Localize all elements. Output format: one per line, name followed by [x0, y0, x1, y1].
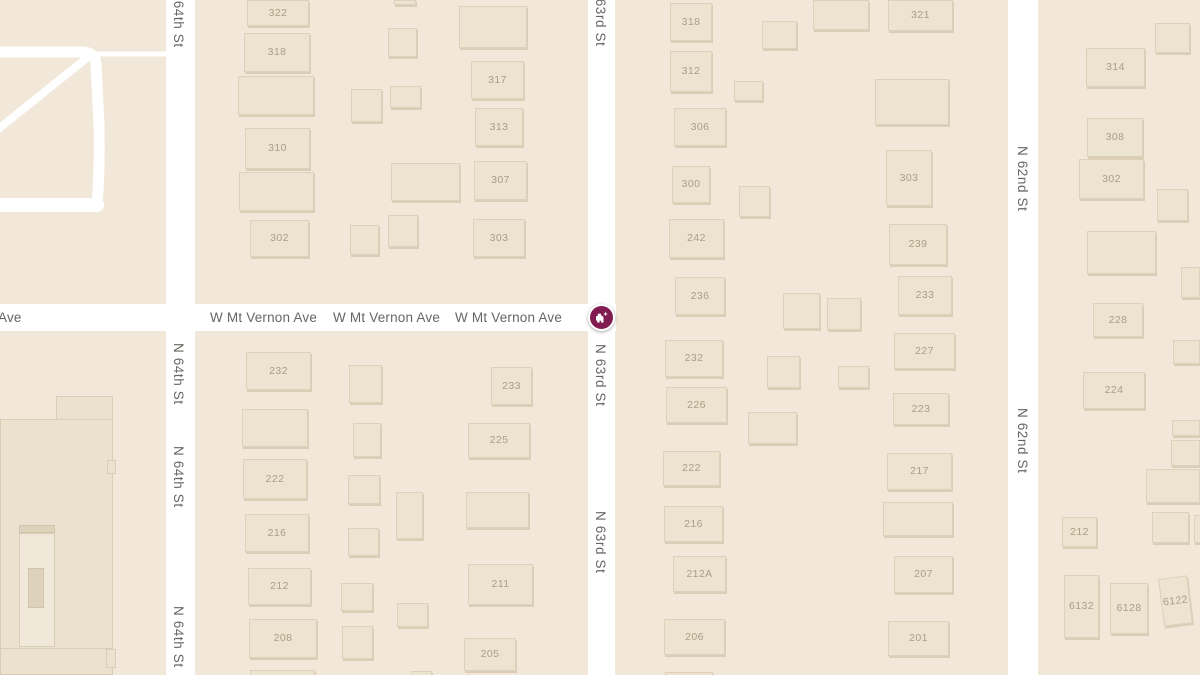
building-number: 216: [268, 528, 287, 539]
building-number: 201: [909, 633, 928, 644]
building-318: 318: [244, 33, 310, 72]
building-223: 223: [893, 393, 949, 425]
building-302: 302: [1079, 159, 1144, 199]
building-232: 232: [246, 352, 311, 390]
building-number: 300: [682, 179, 701, 190]
building-207: 207: [894, 556, 953, 593]
building-number: 322: [269, 8, 288, 19]
building-222: 222: [243, 459, 307, 499]
street-n-63rd-st: [588, 0, 615, 675]
building-201: 201: [888, 621, 949, 656]
building-number: 225: [490, 435, 509, 446]
road-label-n-64th-st: N 64th St: [171, 0, 186, 48]
building-number: 307: [491, 175, 510, 186]
building-number: 208: [274, 633, 293, 644]
building-number: 223: [912, 404, 931, 415]
building-number: 224: [1105, 385, 1124, 396]
building-302: 302: [250, 220, 309, 257]
building: [827, 298, 861, 330]
building-number: 303: [490, 233, 509, 244]
building: [342, 626, 373, 659]
building-number: 205: [481, 649, 500, 660]
building: [411, 671, 432, 675]
road-label-n-62nd-st: N 62nd St: [1015, 408, 1030, 473]
building-number: 6122: [1162, 594, 1188, 607]
building-number: 233: [502, 381, 521, 392]
building-318: 318: [670, 3, 712, 41]
building-number: 236: [691, 291, 710, 302]
building-205: 205: [464, 638, 516, 671]
building-233: 233: [898, 276, 952, 315]
building-239: 239: [889, 224, 947, 265]
driveway-path: [0, 52, 99, 205]
building-number: 222: [266, 474, 285, 485]
building: [739, 186, 770, 217]
building-number: 302: [270, 233, 289, 244]
road-label-w-mt-vernon-ave: W Mt Vernon Ave: [333, 310, 440, 325]
building: [351, 89, 382, 122]
building-227: 227: [894, 333, 955, 369]
building: [0, 419, 113, 675]
street-n-64th-st: [166, 0, 195, 675]
street-n-62nd-st: [1008, 0, 1038, 675]
building: [394, 0, 416, 5]
building-310: 310: [245, 128, 310, 169]
building-number: 302: [1102, 174, 1121, 185]
building-222: 222: [663, 451, 720, 486]
building-number: 6132: [1069, 601, 1094, 612]
building-number: 303: [900, 173, 919, 184]
building-225: 225: [468, 423, 530, 458]
building-number: 306: [691, 122, 710, 133]
building-number: 212: [1070, 527, 1089, 538]
building-number: 211: [492, 579, 510, 590]
building-number: 232: [685, 353, 704, 364]
building: [466, 492, 529, 528]
building: [397, 603, 428, 627]
building-number: 313: [490, 122, 509, 133]
building-number: 310: [268, 143, 287, 154]
building: [239, 172, 314, 211]
building-number: 233: [916, 290, 935, 301]
building: [19, 525, 55, 533]
map-canvas[interactable]: 3223183103023173133073032322222162122082…: [0, 0, 1200, 675]
building: [813, 0, 869, 30]
building: [1087, 231, 1156, 274]
building-number: 317: [488, 75, 507, 86]
building: [28, 568, 44, 608]
road-label-w-mt-vernon-ave: W Mt Vernon Ave: [210, 310, 317, 325]
building: [107, 460, 116, 474]
building-number: 312: [682, 66, 701, 77]
building: [1155, 23, 1190, 53]
building: [391, 163, 460, 201]
building-number: 314: [1106, 62, 1125, 73]
road-label-w-mt-vernon-ave-fragment: Ave: [0, 310, 22, 325]
building-number: 212A: [686, 569, 712, 580]
building-216: 216: [245, 514, 309, 552]
building-number: 222: [682, 463, 701, 474]
building-322: 322: [247, 0, 309, 26]
building-303: 303: [886, 150, 932, 206]
building: [390, 86, 421, 108]
building-208: 208: [249, 619, 317, 658]
building: [459, 6, 527, 48]
building: [250, 670, 315, 675]
building: [1152, 512, 1189, 543]
building-317: 317: [471, 61, 524, 99]
building-number: 6128: [1117, 603, 1142, 614]
road-label-n-63rd-st: N 63rd St: [593, 511, 608, 573]
building-314: 314: [1086, 48, 1145, 87]
building-number: 318: [682, 17, 701, 28]
building: [1171, 440, 1200, 466]
building-number: 242: [687, 233, 706, 244]
building: [783, 293, 820, 329]
building-232: 232: [665, 340, 723, 377]
road-label-n-64th-st: N 64th St: [171, 343, 186, 405]
building: [0, 648, 113, 675]
road-label-n-64th-st: N 64th St: [171, 606, 186, 668]
building: [396, 492, 423, 539]
crash-icon: [594, 310, 609, 325]
building: [767, 356, 800, 388]
building: [1146, 469, 1200, 503]
building-233: 233: [491, 367, 532, 405]
building: [353, 423, 381, 457]
road-label-n-62nd-st: N 62nd St: [1015, 146, 1030, 211]
building: [242, 409, 308, 447]
building-321: 321: [888, 0, 953, 31]
building: [106, 649, 116, 668]
building-300: 300: [672, 166, 710, 203]
building: [762, 21, 797, 49]
building-6132: 6132: [1064, 575, 1099, 638]
building-313: 313: [475, 108, 523, 146]
building-212: 212: [248, 568, 311, 605]
road-label-n-63rd-st: N 63rd St: [593, 344, 608, 406]
building-236: 236: [675, 277, 725, 315]
building-224: 224: [1083, 372, 1145, 409]
building-number: 321: [911, 10, 930, 21]
building-212A: 212A: [673, 556, 726, 592]
building: [349, 365, 382, 403]
building: [1157, 189, 1188, 221]
building: [238, 76, 314, 115]
building-number: 318: [268, 47, 287, 58]
building: [1194, 515, 1200, 543]
building-number: 239: [909, 239, 928, 250]
building-number: 228: [1109, 315, 1128, 326]
building-number: 212: [270, 581, 289, 592]
road-label-n-64th-st: N 64th St: [171, 446, 186, 508]
building-206: 206: [664, 619, 725, 655]
building: [1172, 420, 1200, 436]
building-number: 232: [269, 366, 288, 377]
road-label-w-mt-vernon-ave: W Mt Vernon Ave: [455, 310, 562, 325]
driveway-path: [0, 57, 88, 134]
building-308: 308: [1087, 118, 1143, 157]
building-6122: 6122: [1158, 575, 1193, 626]
building-number: 206: [685, 632, 704, 643]
building-number: 227: [915, 346, 934, 357]
building: [1173, 340, 1200, 364]
building: [341, 583, 373, 611]
building-number: 216: [684, 519, 703, 530]
building: [875, 79, 949, 125]
building-211: 211: [468, 564, 533, 605]
building-number: 226: [687, 400, 706, 411]
building-242: 242: [669, 219, 724, 258]
building-212: 212: [1062, 517, 1097, 547]
building-312: 312: [670, 51, 712, 92]
building: [1181, 267, 1200, 298]
building-303: 303: [473, 219, 525, 257]
building-306: 306: [674, 108, 726, 146]
building: [350, 225, 379, 255]
building: [388, 28, 417, 57]
building: [734, 81, 763, 101]
building: [388, 215, 418, 247]
building: [348, 475, 380, 504]
building-number: 308: [1106, 132, 1125, 143]
building-226: 226: [666, 387, 727, 423]
crash-incident-marker[interactable]: [588, 304, 615, 331]
building-216: 216: [664, 506, 723, 542]
building: [748, 412, 797, 444]
building-6128: 6128: [1110, 583, 1148, 634]
building-number: 207: [914, 569, 933, 580]
building-307: 307: [474, 161, 527, 200]
building-number: 217: [910, 466, 929, 477]
building: [883, 502, 953, 536]
building-228: 228: [1093, 303, 1143, 337]
building-217: 217: [887, 453, 952, 490]
building: [348, 528, 379, 556]
road-label-n-63rd-st: N 63rd St: [593, 0, 608, 46]
building: [838, 366, 869, 388]
